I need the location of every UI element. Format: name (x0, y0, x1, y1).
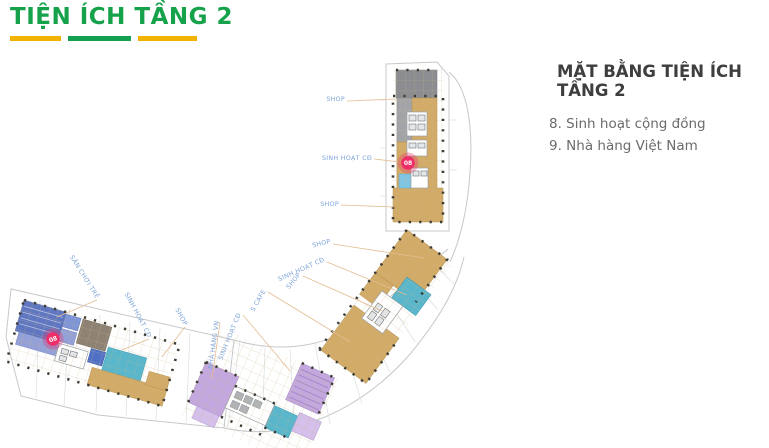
legend-item: 9. Nhà hàng Việt Nam (549, 135, 764, 157)
elevator-core (54, 343, 88, 369)
wing-left (6, 300, 179, 406)
room-label: SHOP (173, 307, 188, 327)
room-label: SÂN CHƠI TRẺ (68, 253, 102, 300)
legend-heading: MẶT BẰNG TIỆN ÍCH TẦNG 2 (557, 62, 764, 100)
legend-item: 8. Sinh hoạt cộng đồng (549, 113, 764, 135)
leader-line (347, 99, 396, 101)
legend-list: 8. Sinh hoạt cộng đồng 9. Nhà hàng Việt … (549, 113, 764, 157)
room-label: SHOP (326, 96, 345, 103)
legend-panel: MẶT BẰNG TIỆN ÍCH TẦNG 2 8. Sinh hoạt cộ… (549, 62, 764, 157)
leader-line (268, 292, 350, 342)
leader-line (57, 300, 97, 317)
leader-line (162, 327, 185, 357)
unit-marker-label: 08 (404, 160, 412, 167)
wing-middle (319, 230, 453, 384)
elevator-core (225, 386, 275, 426)
wing-top (393, 68, 443, 222)
leader-line (243, 315, 290, 371)
leader-line (122, 339, 149, 350)
room-labels: SHOPSINH HOẠT CĐSHOPSHOPSINH HOẠT CĐSHOP… (68, 96, 372, 370)
room-label: SHOP (312, 238, 332, 249)
unit-marker-08: 08 (43, 329, 64, 350)
room-label: SINH HOẠT CĐ (322, 155, 372, 162)
room-label: SINH HOẠT CĐ (277, 256, 326, 283)
floor-plan: SHOPSINH HOẠT CĐSHOPSHOPSINH HOẠT CĐSHOP… (0, 0, 545, 448)
room-label: SHOP (320, 201, 339, 208)
unit-marker-08: 08 (398, 153, 419, 174)
room-label: S CAFE (250, 289, 268, 313)
room-label: NHÀ HÀNG VN (205, 320, 221, 369)
